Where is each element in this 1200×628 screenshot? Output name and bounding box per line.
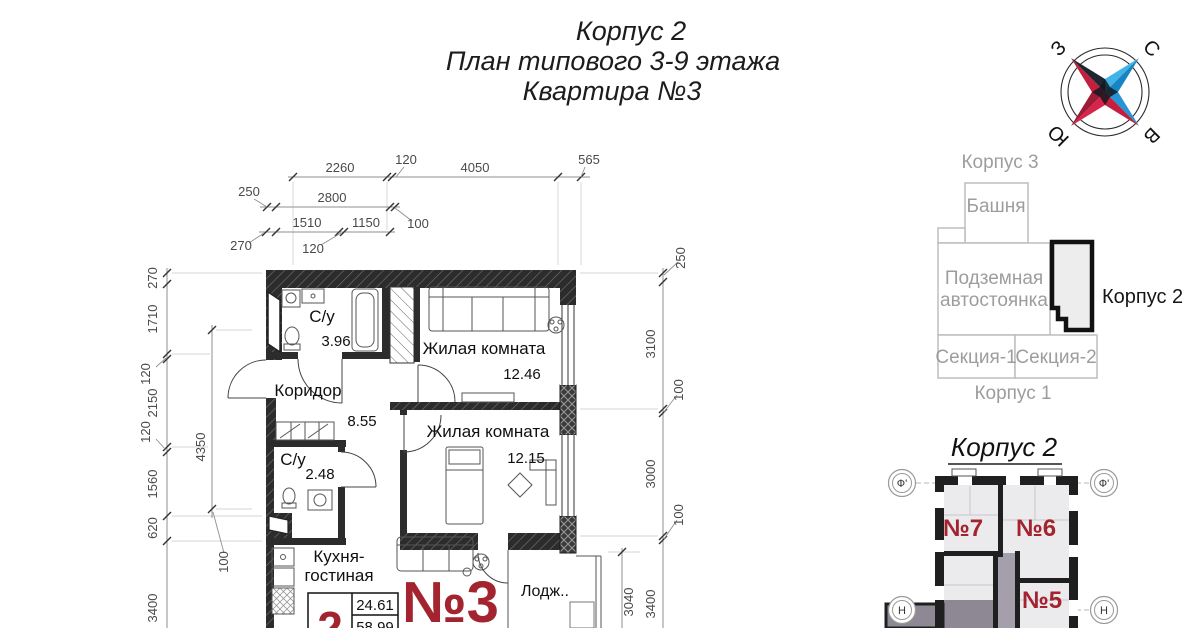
living2-area: 12.15 (507, 450, 545, 467)
bath2-name: С/у (280, 450, 306, 469)
dim-h1-3: 565 (578, 152, 600, 167)
washer-icon (282, 290, 300, 307)
dim-vl-6: 620 (145, 517, 160, 539)
living2-name: Жилая комната (427, 422, 550, 441)
chair-icon (508, 473, 532, 497)
washer2-icon (308, 490, 332, 510)
axis-marker-f-right: Ф' (1091, 470, 1118, 497)
site-section1-label: Секция-1 (935, 347, 1016, 368)
compass-rose-icon: З С Ю В (1044, 36, 1164, 150)
dim-h2-2: 100 (407, 216, 429, 231)
dim-vl-3: 2150 (145, 389, 160, 418)
site-korpus2-label: Корпус 2 (1102, 286, 1183, 308)
compass-north-label: С (1138, 36, 1164, 62)
stove-icon (272, 588, 294, 614)
mini-balcony-right (1038, 469, 1062, 476)
mini-plan-title: Корпус 2 (951, 432, 1058, 462)
dim-vr-3: 3000 (643, 460, 658, 489)
sofa-icon (429, 287, 549, 331)
kitchen-name-line2: гостиная (304, 566, 373, 585)
wardrobe-icon (276, 422, 334, 440)
title-block: Корпус 2 План типового 3-9 этажа Квартир… (446, 16, 780, 106)
site-korpus3-label: Корпус 3 (961, 152, 1038, 173)
kitchen-name-line1: Кухня- (313, 547, 364, 566)
corridor-name: Коридор (274, 381, 341, 400)
drawing-canvas: Корпус 2 План типового 3-9 этажа Квартир… (0, 0, 1200, 628)
shelf-icon (462, 393, 514, 402)
room-labels: С/у 3.96 Жилая комната 12.46 Коридор 8.5… (274, 307, 569, 600)
compass-south-label: Ю (1044, 120, 1074, 150)
svg-text:Н: Н (898, 605, 906, 617)
dim-h3-2: 120 (302, 241, 324, 256)
mini-apt5-label: №5 (1022, 587, 1062, 614)
dim-h2-0: 250 (238, 184, 260, 199)
svg-text:Н: Н (1100, 605, 1108, 617)
dim-vr-4: 100 (671, 504, 686, 526)
site-parking-box (938, 243, 1050, 335)
dim-h3-3: 1150 (352, 215, 380, 230)
dim-h1-1: 120 (395, 152, 417, 167)
dim-h1-2: 4050 (461, 160, 490, 175)
dim-vli-1: 100 (216, 551, 231, 573)
floor-plan: С/у 3.96 Жилая комната 12.46 Коридор 8.5… (138, 152, 688, 628)
site-korpus2-shape (1052, 242, 1092, 330)
dimensions: 2260 120 4050 565 250 2800 100 270 1510 … (138, 152, 688, 628)
dim-vl-7: 3400 (145, 594, 160, 623)
sink-icon (302, 289, 324, 303)
toilet-icon (284, 327, 300, 350)
apartment-number: №3 (402, 570, 499, 628)
loggia-name: Лодж.. (521, 583, 569, 600)
dim-vl-0: 270 (145, 267, 160, 289)
floor-plan-sheet: Корпус 2 План типового 3-9 этажа Квартир… (0, 0, 1200, 628)
dim-h1-0: 2260 (326, 160, 355, 175)
dim-vr-0: 250 (673, 247, 688, 269)
bathtub-icon (352, 289, 378, 351)
dim-h3-0: 270 (230, 238, 252, 253)
compass-east-label: В (1139, 123, 1164, 148)
axis-marker-h-right: Н (1091, 597, 1118, 624)
dim-vri-0: 3040 (621, 588, 636, 617)
site-step-box (938, 228, 965, 243)
living1-area: 12.46 (503, 366, 541, 383)
axis-marker-h-left: Н (889, 597, 916, 624)
dim-vr-5: 3400 (643, 590, 658, 619)
corridor-area: 8.55 (347, 413, 376, 430)
apartment-info-table: 2 24.61 58.99 (308, 593, 398, 628)
site-section2-label: Секция-2 (1015, 347, 1096, 368)
site-tower-label: Башня (966, 196, 1025, 217)
kitchen-sink-icon (272, 548, 294, 566)
site-parking-label-line2: автостоянка (940, 290, 1048, 311)
dim-vl-5: 1560 (145, 470, 160, 499)
fridge-icon (272, 568, 294, 586)
mini-plan: Корпус 2 №7 №6 №5 Ф' Ф' (886, 432, 1118, 628)
mini-apt7-label: №7 (943, 515, 983, 542)
dim-vli-0: 4350 (193, 433, 208, 462)
total-area-value: 58.99 (356, 619, 394, 628)
dim-h3-1: 1510 (293, 215, 322, 230)
rooms-count: 2 (317, 602, 343, 628)
dim-vl-4: 120 (138, 421, 153, 443)
toilet2-icon (282, 488, 296, 508)
bath2-area: 2.48 (305, 466, 334, 483)
dim-vl-1: 1710 (145, 305, 160, 334)
living-area-value: 24.61 (356, 597, 394, 614)
living1-name: Жилая комната (423, 339, 546, 358)
svg-text:Ф': Ф' (897, 478, 907, 490)
dim-vr-2: 100 (671, 379, 686, 401)
dim-vl-2: 120 (138, 363, 153, 385)
dim-vr-1: 3100 (643, 330, 658, 359)
bath1-area: 3.96 (321, 333, 350, 350)
site-parking-label-line1: Подземная (945, 268, 1043, 289)
mini-apt6-label: №6 (1016, 515, 1056, 542)
plan-title-floor: План типового 3-9 этажа (446, 46, 780, 76)
axis-marker-f-left: Ф' (889, 470, 916, 497)
dim-h2-1: 2800 (318, 190, 347, 205)
plan-title-apartment: Квартира №3 (523, 76, 702, 106)
site-plan: Корпус 3 Башня Подземная автостоянка Сек… (935, 152, 1183, 404)
compass-west-label: З (1047, 37, 1071, 61)
site-korpus1-label: Корпус 1 (974, 383, 1051, 404)
bed-icon (446, 447, 483, 524)
mini-balcony-left (952, 469, 976, 476)
svg-text:Ф': Ф' (1099, 478, 1109, 490)
bath1-name: С/у (309, 307, 335, 326)
plan-title-korpus: Корпус 2 (576, 16, 686, 46)
